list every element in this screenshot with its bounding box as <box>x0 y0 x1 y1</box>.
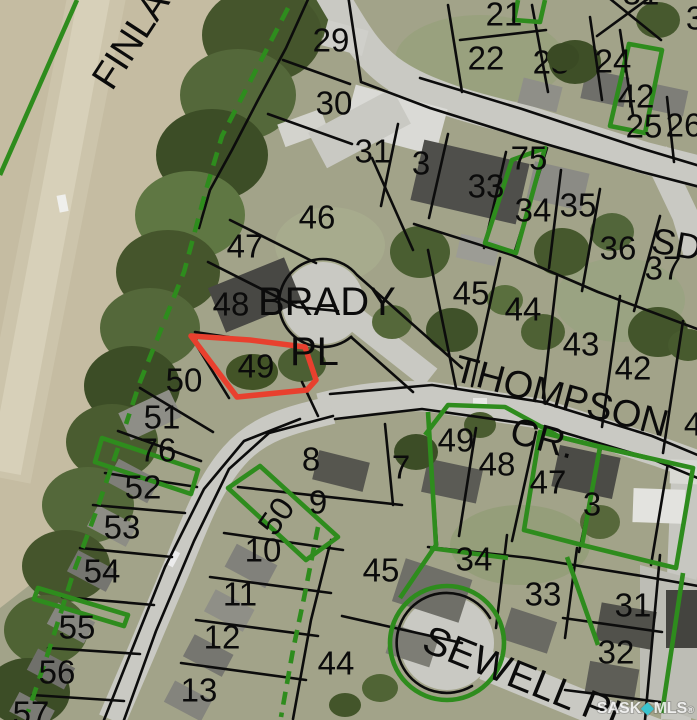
lot-number-label: 11 <box>223 576 257 613</box>
lot-number-label: 46 <box>299 199 336 236</box>
aerial-map[interactable]: FINLAYBRADYPLTHOMPSONCR.SEWELL PLSD 2930… <box>0 0 697 720</box>
lot-number-label: 53 <box>104 509 141 546</box>
lot-number-label: 31 <box>623 0 660 12</box>
lot-number-label: 42 <box>615 350 652 387</box>
lot-number-label: 33 <box>525 576 562 613</box>
watermark-registered: ® <box>687 705 694 715</box>
lot-number-label: 36 <box>600 230 637 267</box>
lot-number-label: 57 <box>13 695 50 720</box>
lot-number-label: 34 <box>515 192 552 229</box>
lot-number-label: 45 <box>453 275 490 312</box>
lot-number-label: 33 <box>468 168 505 205</box>
watermark-diamond-icon: ◆ <box>640 700 654 717</box>
mls-aerial-map-view[interactable]: FINLAYBRADYPLTHOMPSONCR.SEWELL PLSD 2930… <box>0 0 697 720</box>
lot-number-label: 48 <box>479 446 516 483</box>
lot-number-label: 76 <box>140 432 177 469</box>
lot-number-label: 43 <box>563 326 600 363</box>
lot-number-label: 13 <box>181 672 218 709</box>
lot-number-label: 8 <box>302 441 320 478</box>
sask-mls-watermark: SASK◆MLS® <box>597 700 695 717</box>
lot-number-label: 22 <box>468 40 505 77</box>
lot-number-label: 21 <box>486 0 523 33</box>
lot-number-label: 55 <box>59 609 96 646</box>
lot-number-label: 35 <box>560 187 597 224</box>
lot-number-label: 10 <box>245 532 282 569</box>
lot-number-label: 9 <box>309 484 327 521</box>
street-name-label: BRADY <box>258 280 396 324</box>
lot-number-label: 24 <box>595 43 632 80</box>
lot-number-label: 45 <box>363 552 400 589</box>
lot-number-label: 47 <box>227 228 264 265</box>
lot-number-label: 30 <box>316 85 353 122</box>
watermark-suffix: MLS <box>654 700 688 717</box>
lot-number-label: 32 <box>598 634 635 671</box>
watermark-prefix: SASK <box>597 700 642 717</box>
lot-number-label: 26 <box>666 107 697 144</box>
lot-number-label: 51 <box>144 399 181 436</box>
lot-number-label: 7 <box>392 449 410 486</box>
lot-number-label: 47 <box>530 464 567 501</box>
lot-number-label: 49 <box>238 348 275 385</box>
lot-number-label: 50 <box>166 362 203 399</box>
lot-number-label: 37 <box>645 250 682 287</box>
lot-number-label: 4 <box>684 406 697 443</box>
lot-number-label: 12 <box>204 619 241 656</box>
lot-number-label: 52 <box>125 469 162 506</box>
lot-number-label: 3 <box>686 0 697 37</box>
lot-number-label: 34 <box>456 541 493 578</box>
lot-number-label: 31 <box>355 133 392 170</box>
street-name-label: PL <box>290 330 339 374</box>
lot-number-label: 3 <box>412 145 430 182</box>
lot-number-label: 49 <box>438 422 475 459</box>
lot-number-label: 29 <box>313 22 350 59</box>
lot-number-label: 44 <box>318 645 355 682</box>
lot-number-label: 54 <box>84 553 121 590</box>
lot-number-label: 48 <box>213 286 250 323</box>
lot-number-label: 75 <box>511 140 548 177</box>
lot-number-label: 3 <box>583 486 601 523</box>
lot-number-label: 56 <box>39 654 76 691</box>
lot-number-label: 25 <box>626 108 663 145</box>
overhanging-trees <box>547 43 579 71</box>
lot-number-label: 31 <box>615 587 652 624</box>
lot-number-label: 44 <box>505 291 542 328</box>
